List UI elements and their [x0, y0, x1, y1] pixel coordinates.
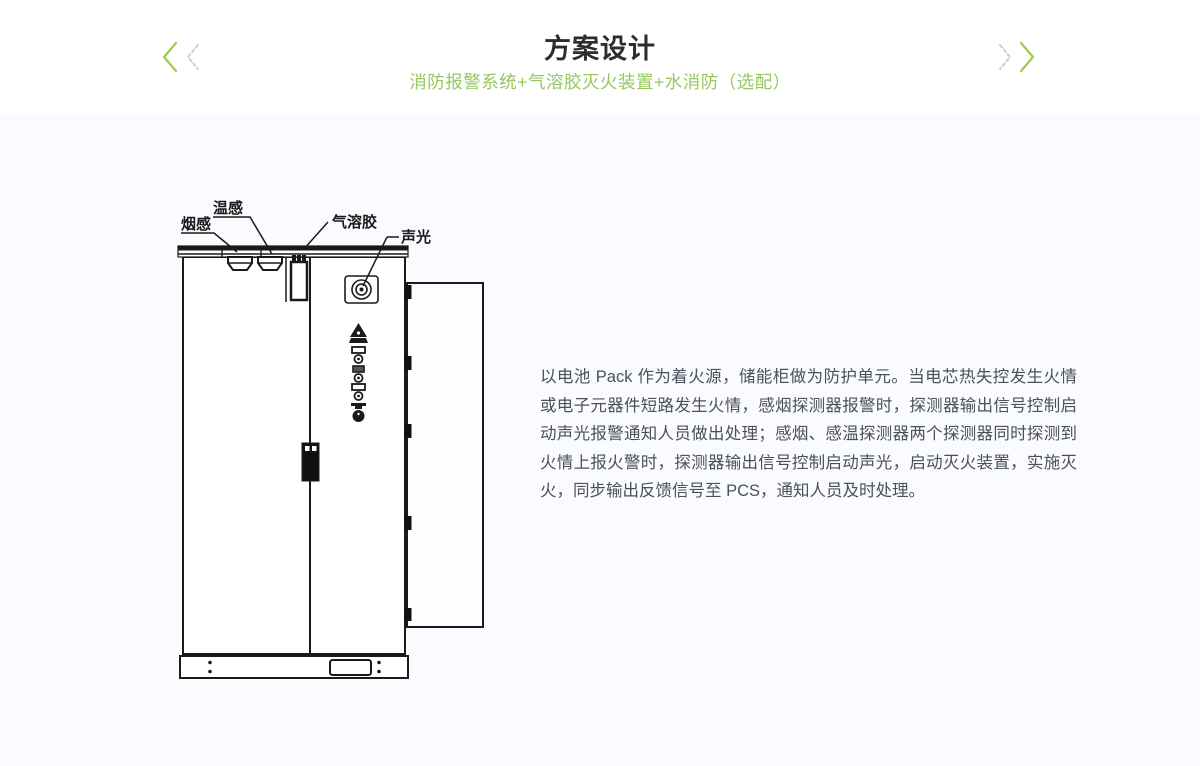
- aerosol-device: [291, 255, 307, 300]
- sound-light-alarm: [345, 276, 378, 303]
- next-arrows-button[interactable]: [985, 38, 1055, 78]
- side-panel: [407, 283, 483, 627]
- label-smoke-sensor: 烟感: [181, 215, 211, 233]
- chevron-right-ghost-icon[interactable]: [1000, 45, 1010, 69]
- base-plinth: [180, 656, 408, 678]
- label-temp-sensor: 温感: [213, 199, 243, 217]
- label-sound-light: 声光: [400, 228, 431, 246]
- label-aerosol: 气溶胶: [331, 213, 377, 231]
- description-paragraph: 以电池 Pack 作为着火源，储能柜做为防护单元。当电芯热失控发生火情或电子元器…: [540, 363, 1077, 506]
- door-handle: [302, 443, 319, 481]
- header: 方案设计 消防报警系统+气溶胶灭火装置+水消防（选配）: [0, 0, 1200, 114]
- cabinet-body: [183, 257, 405, 654]
- chevron-right-icon[interactable]: [1021, 43, 1033, 71]
- cabinet-diagram-svg: 烟感 温感 气溶胶 声光: [160, 180, 500, 700]
- page-root: { "header": { "title": "方案设计", "subtitle…: [0, 0, 1200, 766]
- cabinet-diagram: 烟感 温感 气溶胶 声光: [160, 180, 500, 700]
